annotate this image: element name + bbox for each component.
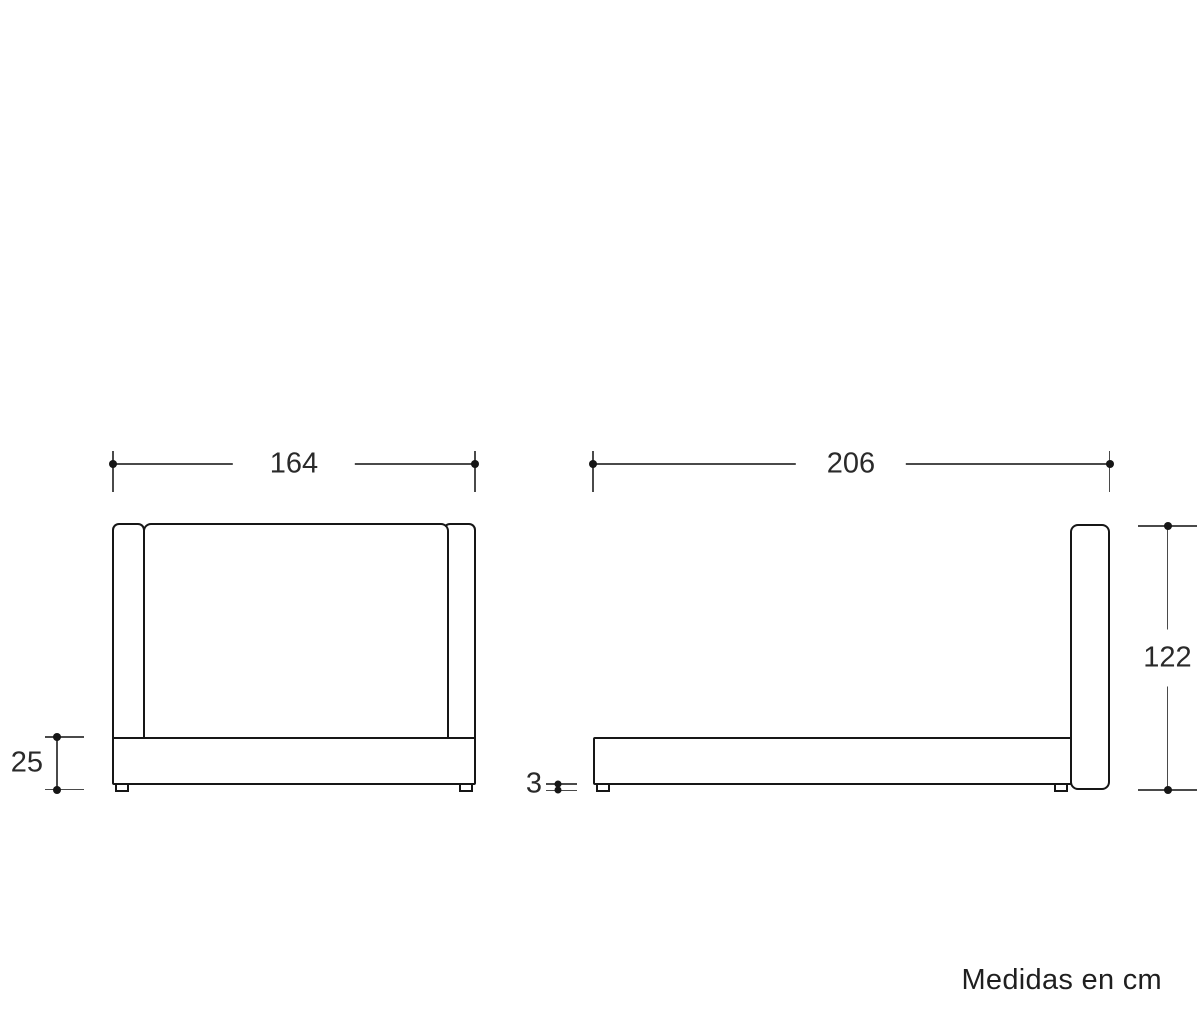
dim-side-length-dot-left [589, 460, 597, 468]
diagram-root: 164 206 25 122 3 Medidas en cm [0, 0, 1200, 1028]
side-base [593, 737, 1072, 785]
dim-base-height-tick-top [45, 736, 84, 738]
dim-base-height-dot-top [53, 733, 61, 741]
side-headboard [1070, 524, 1110, 790]
dim-base-height-line [56, 737, 58, 790]
dim-front-width-dot-left [109, 460, 117, 468]
dim-leg-height-dot-bottom [554, 787, 561, 794]
units-caption: Medidas en cm [961, 964, 1162, 997]
dim-base-height-dot-bottom [53, 786, 61, 794]
dim-label-overall-height: 122 [1135, 629, 1199, 686]
dim-overall-height-dot-bottom [1164, 786, 1172, 794]
dim-label-side-length: 206 [796, 447, 906, 482]
dim-leg-height-tick-top [546, 783, 577, 784]
dim-label-leg-height: 3 [526, 769, 542, 798]
dim-front-width-tick-left [112, 451, 114, 492]
dim-base-height-tick-bottom [45, 789, 84, 791]
front-base [112, 737, 476, 785]
dim-leg-height-tick-bottom [546, 790, 577, 791]
dim-side-length-tick-right [1109, 451, 1111, 492]
dim-label-front-width: 164 [233, 447, 355, 482]
dim-front-width-tick-right [474, 451, 476, 492]
dim-front-width-dot-right [471, 460, 479, 468]
dim-side-length-dot-right [1106, 460, 1114, 468]
dim-overall-height-dot-top [1164, 522, 1172, 530]
dim-side-length-tick-left [592, 451, 594, 492]
front-headboard-panel [143, 523, 449, 739]
front-side-panel-left [112, 523, 145, 739]
dim-label-base-height: 25 [11, 749, 43, 778]
